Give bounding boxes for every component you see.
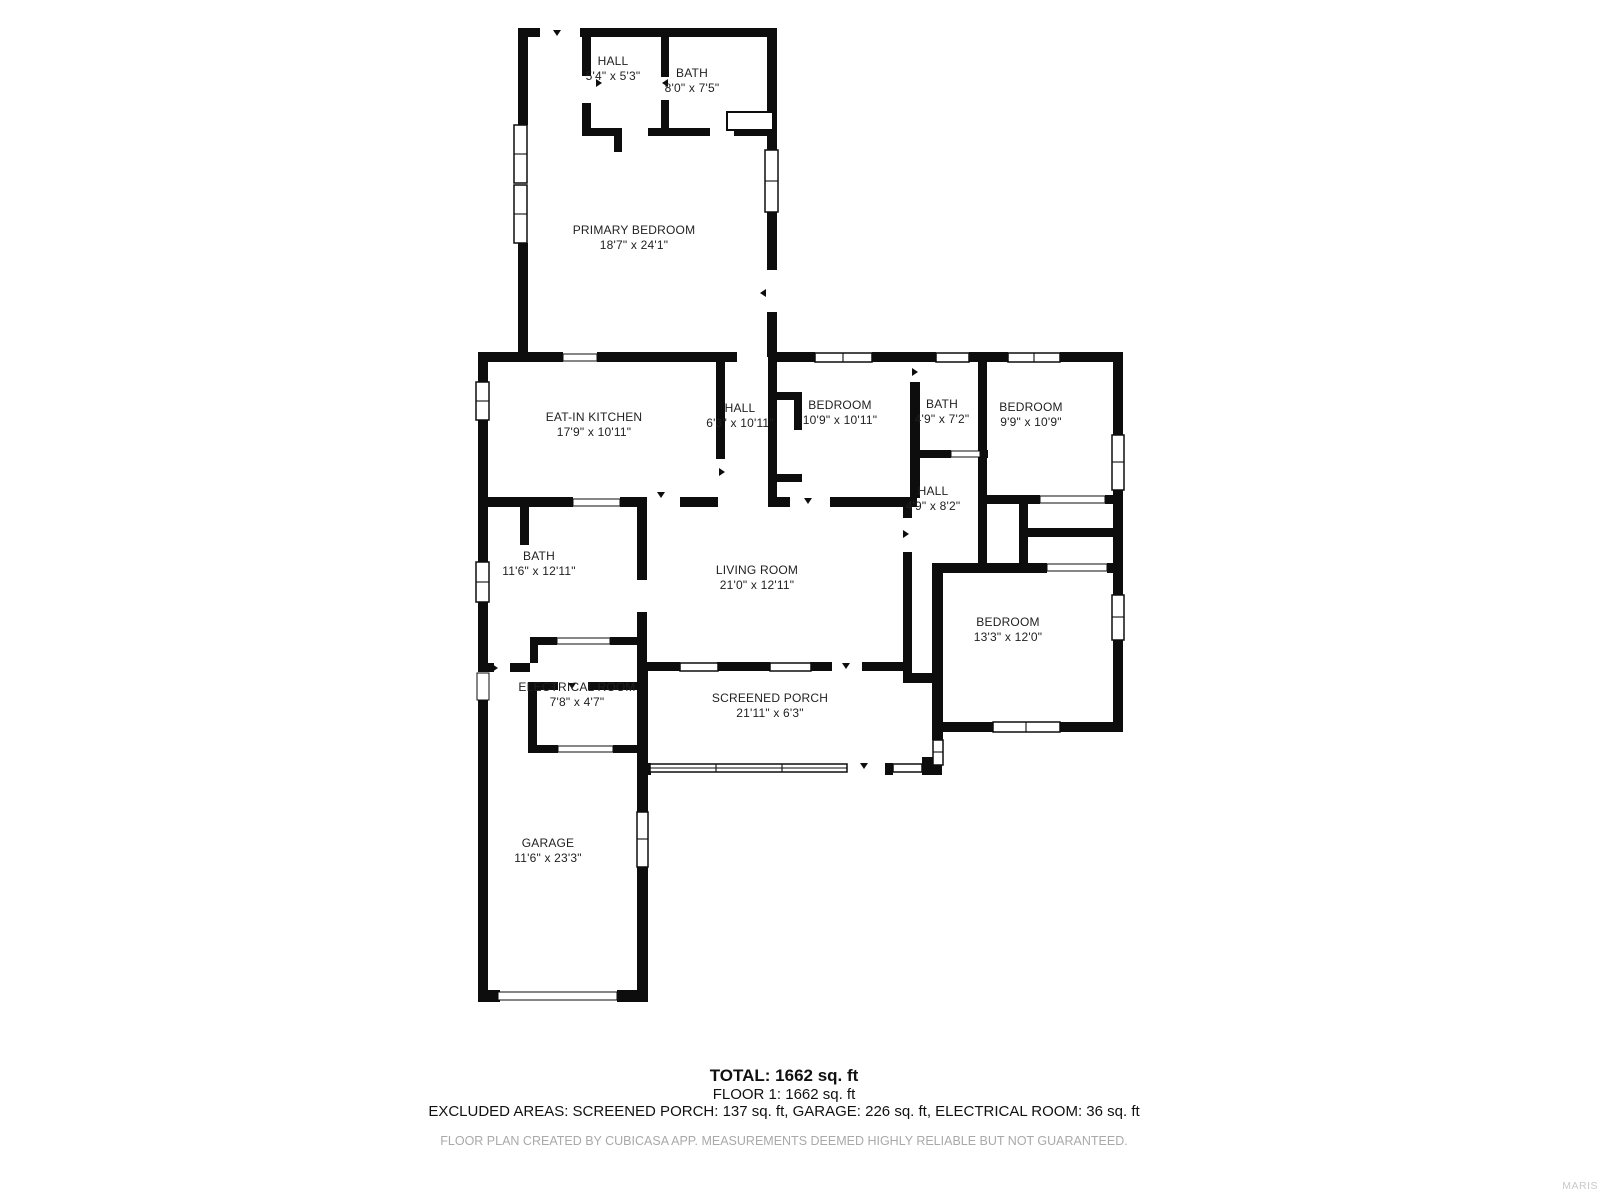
room-label-bath-small: BATH 4'9" x 7'2" bbox=[915, 397, 970, 427]
room-name: BATH bbox=[915, 397, 970, 412]
door-tick bbox=[657, 492, 665, 498]
screen-window-band bbox=[650, 764, 847, 772]
cased-opening bbox=[1040, 496, 1105, 503]
garage-door-opening bbox=[498, 992, 617, 1000]
cased-opening bbox=[951, 451, 980, 457]
room-name: HALL bbox=[586, 54, 641, 69]
room-dims: 4'9" x 7'2" bbox=[915, 412, 970, 427]
door-tick bbox=[903, 530, 909, 538]
floor-plan-page: HALL 5'4" x 5'3" BATH 8'0" x 7'5" PRIMAR… bbox=[0, 0, 1600, 1200]
room-dims: 4'9" x 8'2" bbox=[906, 499, 961, 514]
room-label-bath-upper: BATH 8'0" x 7'5" bbox=[665, 66, 720, 96]
room-dims: 18'7" x 24'1" bbox=[573, 238, 696, 253]
floor-area-text: FLOOR 1: 1662 sq. ft bbox=[0, 1086, 1568, 1103]
window-glyph bbox=[514, 125, 527, 183]
room-dims: 13'3" x 12'0" bbox=[974, 630, 1042, 645]
door-tick bbox=[912, 368, 918, 376]
room-name: GARAGE bbox=[514, 836, 582, 851]
room-dims: 11'6" x 23'3" bbox=[514, 851, 582, 866]
room-label-garage: GARAGE 11'6" x 23'3" bbox=[514, 836, 582, 866]
room-label-living-room: LIVING ROOM 21'0" x 12'11" bbox=[716, 563, 798, 593]
door-tick bbox=[760, 289, 766, 297]
room-label-bedroom-2: BEDROOM 9'9" x 10'9" bbox=[999, 400, 1062, 430]
door-tick bbox=[553, 30, 561, 36]
window-glyph bbox=[1112, 435, 1124, 490]
window-glyph bbox=[993, 722, 1060, 732]
room-label-primary-bedroom: PRIMARY BEDROOM 18'7" x 24'1" bbox=[573, 223, 696, 253]
disclaimer-text: FLOOR PLAN CREATED BY CUBICASA APP. MEAS… bbox=[0, 1134, 1568, 1148]
room-name: BEDROOM bbox=[803, 398, 877, 413]
total-area-text: TOTAL: 1662 sq. ft bbox=[0, 1066, 1568, 1086]
room-label-bedroom-3: BEDROOM 13'3" x 12'0" bbox=[974, 615, 1042, 645]
cased-opening bbox=[477, 673, 489, 700]
window-glyph bbox=[476, 562, 489, 602]
room-dims: 9'9" x 10'9" bbox=[999, 415, 1062, 430]
bath-shelf bbox=[727, 112, 773, 130]
window-glyph bbox=[933, 740, 943, 765]
room-dims: 8'0" x 7'5" bbox=[665, 81, 720, 96]
room-name: BEDROOM bbox=[999, 400, 1062, 415]
room-dims: 10'9" x 10'11" bbox=[803, 413, 877, 428]
room-dims: 11'6" x 12'11" bbox=[502, 564, 576, 579]
cased-opening bbox=[1047, 564, 1107, 571]
room-name: PRIMARY BEDROOM bbox=[573, 223, 696, 238]
door-tick bbox=[804, 498, 812, 504]
room-name: BATH bbox=[502, 549, 576, 564]
room-label-screened-porch: SCREENED PORCH 21'11" x 6'3" bbox=[712, 691, 828, 721]
window-glyph bbox=[1112, 595, 1124, 640]
cased-opening bbox=[557, 638, 610, 644]
cased-opening bbox=[558, 746, 613, 752]
room-label-hall-kitchen: HALL 6'3" x 10'11" bbox=[706, 401, 774, 431]
window-glyph bbox=[815, 353, 872, 362]
room-dims: 7'8" x 4'7" bbox=[518, 695, 635, 710]
room-label-bath-large: BATH 11'6" x 12'11" bbox=[502, 549, 576, 579]
door-tick bbox=[492, 664, 498, 672]
door-tick bbox=[719, 468, 725, 476]
cased-opening bbox=[573, 499, 620, 506]
room-label-eat-in-kitchen: EAT-IN KITCHEN 17'9" x 10'11" bbox=[546, 410, 643, 440]
room-name: BATH bbox=[665, 66, 720, 81]
room-name: HALL bbox=[906, 484, 961, 499]
excluded-areas-text: EXCLUDED AREAS: SCREENED PORCH: 137 sq. … bbox=[0, 1103, 1568, 1120]
window-glyph bbox=[770, 663, 811, 671]
room-name: BEDROOM bbox=[974, 615, 1042, 630]
room-dims: 6'3" x 10'11" bbox=[706, 416, 774, 431]
window-glyph bbox=[514, 185, 527, 243]
screen-window-band bbox=[893, 764, 922, 772]
room-dims: 17'9" x 10'11" bbox=[546, 425, 643, 440]
cased-opening bbox=[563, 354, 597, 361]
window-glyph bbox=[476, 382, 489, 420]
window-glyph bbox=[680, 663, 718, 671]
window-glyph bbox=[1008, 353, 1060, 362]
room-dims: 5'4" x 5'3" bbox=[586, 69, 641, 84]
window-glyph bbox=[637, 812, 648, 867]
room-name: SCREENED PORCH bbox=[712, 691, 828, 706]
room-name: HALL bbox=[706, 401, 774, 416]
room-label-bedroom-1: BEDROOM 10'9" x 10'11" bbox=[803, 398, 877, 428]
room-label-hall-upper: HALL 5'4" x 5'3" bbox=[586, 54, 641, 84]
room-label-electrical-room: ELECTRICAL ROOM 7'8" x 4'7" bbox=[518, 680, 635, 710]
room-dims: 21'11" x 6'3" bbox=[712, 706, 828, 721]
window-glyph bbox=[936, 353, 969, 362]
window-glyph bbox=[765, 150, 778, 212]
floor-plan-drawing bbox=[0, 0, 1600, 1200]
room-label-hall-lower: HALL 4'9" x 8'2" bbox=[906, 484, 961, 514]
room-dims: 21'0" x 12'11" bbox=[716, 578, 798, 593]
door-tick bbox=[860, 763, 868, 769]
room-name: ELECTRICAL ROOM bbox=[518, 680, 635, 695]
door-tick bbox=[842, 663, 850, 669]
maris-watermark: MARIS bbox=[1562, 1180, 1598, 1192]
room-name: EAT-IN KITCHEN bbox=[546, 410, 643, 425]
openings-layer bbox=[477, 354, 1107, 1000]
room-name: LIVING ROOM bbox=[716, 563, 798, 578]
